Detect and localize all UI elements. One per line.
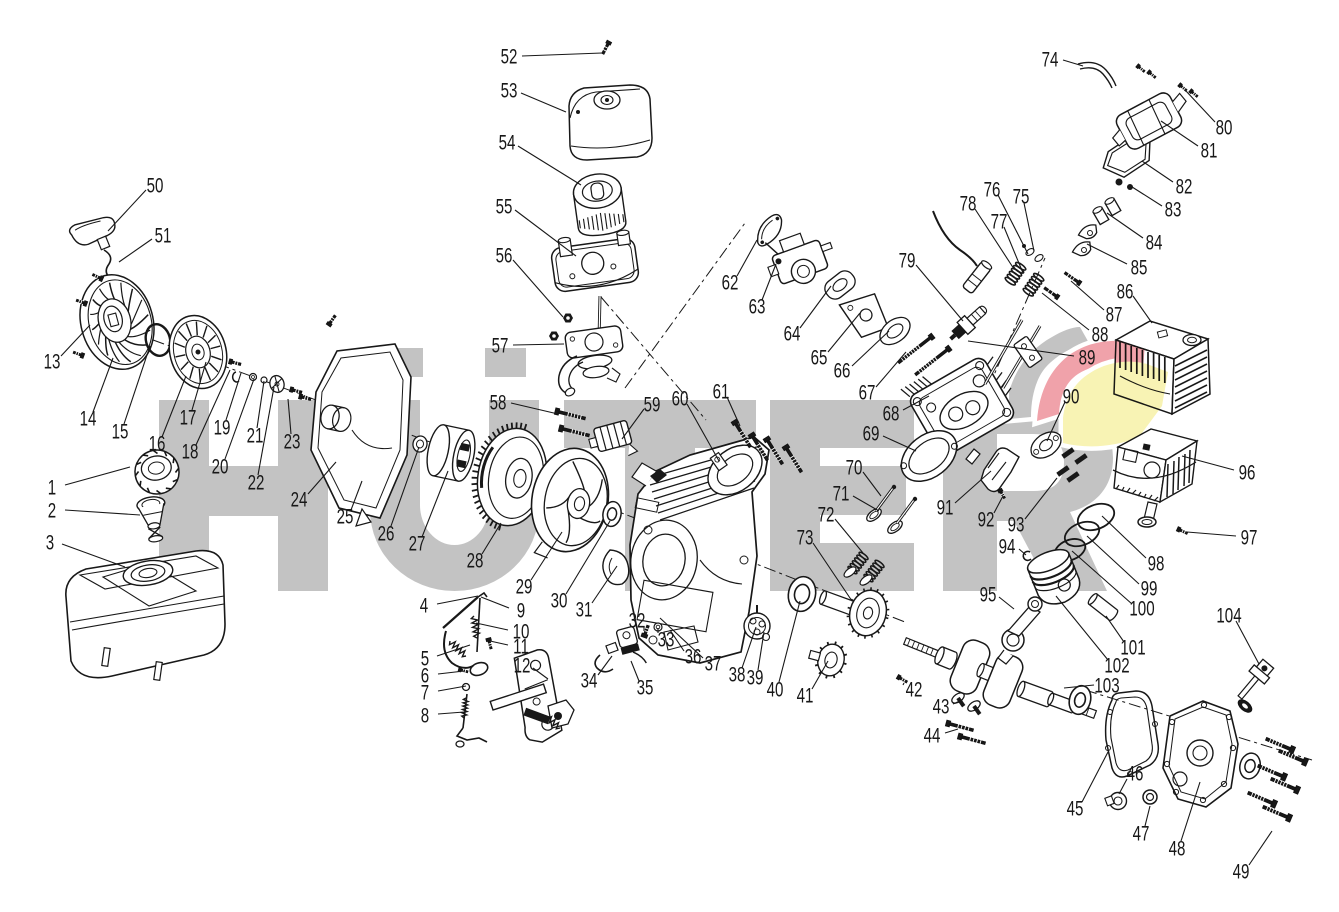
svg-text:48: 48 xyxy=(1169,836,1186,860)
svg-text:17: 17 xyxy=(180,405,197,429)
svg-text:36: 36 xyxy=(685,644,702,668)
svg-text:42: 42 xyxy=(906,677,923,701)
svg-text:31: 31 xyxy=(576,597,593,621)
svg-text:70: 70 xyxy=(846,455,863,479)
svg-text:27: 27 xyxy=(409,531,426,555)
svg-text:50: 50 xyxy=(147,173,164,197)
svg-text:91: 91 xyxy=(937,495,954,519)
svg-text:4: 4 xyxy=(420,593,428,617)
svg-text:104: 104 xyxy=(1216,603,1241,627)
svg-text:32: 32 xyxy=(629,608,646,632)
svg-text:28: 28 xyxy=(467,548,484,572)
svg-text:8: 8 xyxy=(421,703,429,727)
svg-text:26: 26 xyxy=(378,521,395,545)
svg-text:25: 25 xyxy=(337,504,354,528)
svg-text:61: 61 xyxy=(713,379,730,403)
svg-text:56: 56 xyxy=(496,243,513,267)
svg-text:45: 45 xyxy=(1067,796,1084,820)
svg-text:24: 24 xyxy=(291,487,308,511)
svg-text:103: 103 xyxy=(1094,673,1119,697)
svg-text:20: 20 xyxy=(212,454,229,478)
svg-text:78: 78 xyxy=(960,191,977,215)
svg-text:37: 37 xyxy=(705,651,722,675)
svg-text:58: 58 xyxy=(490,390,507,414)
svg-text:23: 23 xyxy=(284,429,301,453)
svg-text:64: 64 xyxy=(784,321,801,345)
svg-text:59: 59 xyxy=(644,392,661,416)
svg-text:81: 81 xyxy=(1201,138,1218,162)
svg-text:69: 69 xyxy=(863,421,880,445)
svg-text:95: 95 xyxy=(980,582,997,606)
svg-text:94: 94 xyxy=(999,534,1016,558)
svg-text:60: 60 xyxy=(672,386,689,410)
svg-text:18: 18 xyxy=(182,439,199,463)
svg-text:86: 86 xyxy=(1117,279,1134,303)
svg-text:34: 34 xyxy=(581,668,598,692)
svg-text:75: 75 xyxy=(1013,184,1030,208)
svg-text:51: 51 xyxy=(155,223,172,247)
svg-text:65: 65 xyxy=(811,345,828,369)
svg-text:49: 49 xyxy=(1233,859,1250,883)
svg-text:72: 72 xyxy=(818,502,835,526)
svg-text:66: 66 xyxy=(834,358,851,382)
svg-text:80: 80 xyxy=(1216,115,1233,139)
svg-text:46: 46 xyxy=(1127,761,1144,785)
svg-text:85: 85 xyxy=(1131,255,1148,279)
svg-text:21: 21 xyxy=(247,423,264,447)
svg-text:29: 29 xyxy=(516,574,533,598)
svg-text:76: 76 xyxy=(984,177,1001,201)
svg-text:14: 14 xyxy=(80,406,97,430)
svg-text:68: 68 xyxy=(883,401,900,425)
svg-text:79: 79 xyxy=(899,248,916,272)
svg-text:82: 82 xyxy=(1176,174,1193,198)
svg-text:84: 84 xyxy=(1146,230,1163,254)
svg-text:98: 98 xyxy=(1148,551,1165,575)
svg-text:38: 38 xyxy=(729,662,746,686)
svg-text:55: 55 xyxy=(496,194,513,218)
svg-text:74: 74 xyxy=(1042,47,1059,71)
svg-text:44: 44 xyxy=(924,723,941,747)
svg-text:3: 3 xyxy=(46,530,54,554)
svg-text:52: 52 xyxy=(501,44,518,68)
svg-text:92: 92 xyxy=(978,507,995,531)
svg-text:47: 47 xyxy=(1133,821,1150,845)
svg-text:33: 33 xyxy=(658,627,675,651)
svg-text:93: 93 xyxy=(1008,512,1025,536)
svg-text:90: 90 xyxy=(1063,384,1080,408)
svg-text:73: 73 xyxy=(797,525,814,549)
svg-text:13: 13 xyxy=(44,349,61,373)
svg-text:19: 19 xyxy=(214,415,231,439)
svg-text:39: 39 xyxy=(747,665,764,689)
svg-text:100: 100 xyxy=(1129,596,1154,620)
svg-text:97: 97 xyxy=(1241,525,1258,549)
svg-text:63: 63 xyxy=(749,294,766,318)
svg-text:88: 88 xyxy=(1092,322,1109,346)
svg-text:71: 71 xyxy=(833,481,850,505)
svg-text:77: 77 xyxy=(991,209,1008,233)
svg-text:30: 30 xyxy=(551,588,568,612)
svg-text:89: 89 xyxy=(1079,345,1096,369)
svg-text:83: 83 xyxy=(1165,197,1182,221)
svg-text:2: 2 xyxy=(48,498,56,522)
svg-text:12: 12 xyxy=(514,653,531,677)
svg-text:43: 43 xyxy=(933,694,950,718)
svg-text:35: 35 xyxy=(637,675,654,699)
svg-text:57: 57 xyxy=(492,333,509,357)
svg-text:40: 40 xyxy=(767,677,784,701)
svg-text:96: 96 xyxy=(1239,460,1256,484)
svg-text:41: 41 xyxy=(797,683,814,707)
svg-text:53: 53 xyxy=(501,78,518,102)
svg-text:54: 54 xyxy=(499,130,516,154)
svg-text:1: 1 xyxy=(48,475,56,499)
svg-text:16: 16 xyxy=(149,431,166,455)
svg-text:15: 15 xyxy=(112,419,129,443)
svg-text:67: 67 xyxy=(859,380,876,404)
svg-text:7: 7 xyxy=(421,680,429,704)
svg-text:22: 22 xyxy=(248,470,265,494)
svg-text:62: 62 xyxy=(722,270,739,294)
